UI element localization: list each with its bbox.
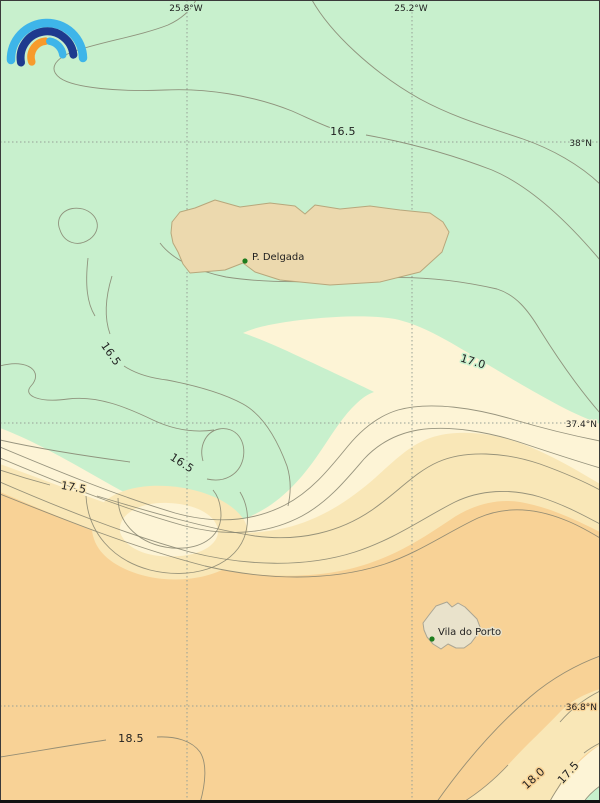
place-label-p-delgada: P. Delgada: [252, 252, 304, 263]
map-canvas[interactable]: P. Delgada Vila do Porto 16.5 16.5 16.5 …: [0, 0, 600, 803]
latitude-label-38n: 38°N: [569, 139, 592, 149]
place-marker-p-delgada: [242, 258, 247, 263]
map-frame: P. Delgada Vila do Porto 16.5 16.5 16.5 …: [0, 0, 600, 803]
contour-label-18-5: 18.5: [118, 732, 144, 745]
latitude-label-37-4n: 37.4°N: [566, 420, 597, 430]
longitude-label-25-8w: 25.8°W: [169, 4, 203, 14]
latitude-label-36-8n: 36.8°N: [566, 703, 597, 713]
longitude-label-25-2w: 25.2°W: [394, 4, 428, 14]
place-label-vila-do-porto: Vila do Porto: [438, 627, 501, 638]
contour-label-16-5-top: 16.5: [330, 125, 356, 138]
place-marker-vila-do-porto: [429, 636, 434, 641]
